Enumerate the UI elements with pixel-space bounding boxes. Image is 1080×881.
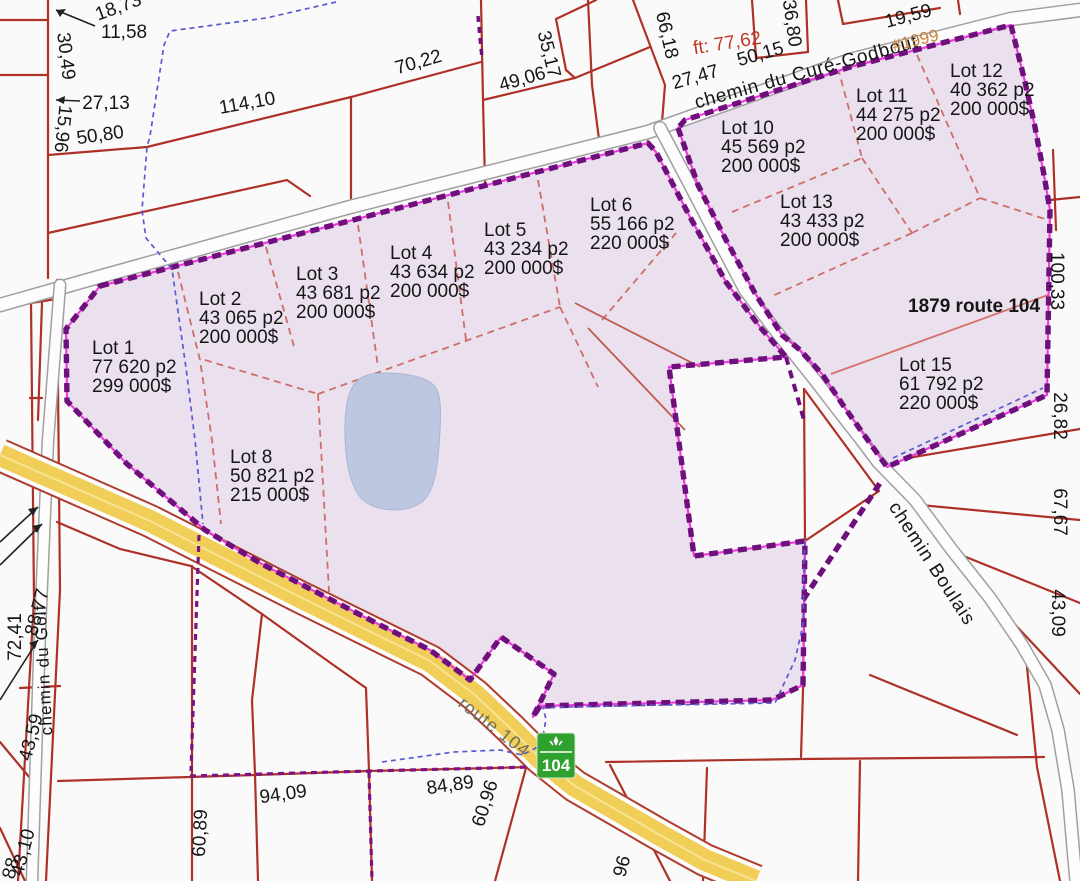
svg-text:1879 route 104: 1879 route 104	[908, 296, 1040, 317]
svg-text:104: 104	[542, 756, 571, 775]
svg-text:26,82: 26,82	[1049, 392, 1070, 440]
svg-text:43,09: 43,09	[1047, 589, 1068, 637]
svg-text:72,41: 72,41	[5, 613, 26, 661]
svg-text:67,67: 67,67	[1049, 488, 1070, 536]
svg-text:100,33: 100,33	[1046, 252, 1067, 310]
svg-text:60,89: 60,89	[189, 809, 212, 858]
svg-text:27,13: 27,13	[82, 93, 130, 114]
svg-text:11,58: 11,58	[101, 22, 147, 43]
